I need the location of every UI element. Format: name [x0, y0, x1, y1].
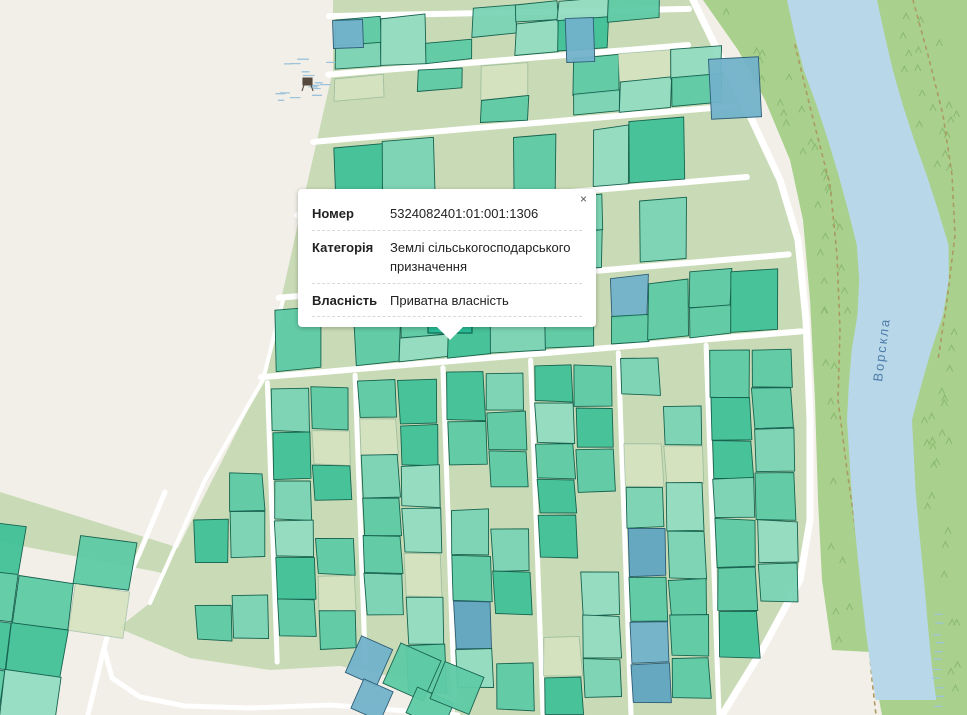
land-parcel[interactable]	[68, 584, 129, 639]
popup-field-label: Категорія	[312, 238, 390, 277]
popup-row-number: Номер 5324082401:01:001:1306	[312, 197, 582, 231]
popup-row-ownership: Власність Приватна власність	[312, 284, 582, 318]
land-parcel[interactable]	[630, 622, 669, 664]
land-parcel[interactable]	[487, 411, 527, 450]
land-parcel[interactable]	[454, 601, 492, 649]
land-parcel[interactable]	[629, 117, 685, 183]
land-parcel[interactable]	[493, 571, 533, 615]
land-parcel[interactable]	[668, 579, 706, 616]
land-parcel[interactable]	[610, 274, 648, 318]
land-parcel[interactable]	[363, 536, 403, 574]
land-parcel[interactable]	[713, 441, 754, 479]
land-parcel[interactable]	[334, 74, 384, 101]
map-generated-layers	[0, 0, 967, 715]
land-parcel[interactable]	[230, 511, 265, 557]
land-parcel[interactable]	[544, 636, 583, 676]
land-parcel[interactable]	[6, 623, 69, 678]
map-canvas[interactable]: Ворскла	[0, 0, 967, 715]
land-parcel[interactable]	[621, 358, 661, 396]
land-parcel[interactable]	[576, 449, 616, 493]
land-parcel[interactable]	[278, 599, 317, 637]
land-parcel[interactable]	[319, 611, 356, 650]
land-parcel[interactable]	[535, 365, 573, 402]
land-parcel[interactable]	[311, 387, 348, 430]
land-parcel[interactable]	[628, 528, 666, 576]
land-parcel[interactable]	[318, 575, 356, 611]
land-parcel[interactable]	[480, 95, 528, 122]
land-parcel[interactable]	[275, 481, 312, 521]
land-parcel[interactable]	[515, 20, 558, 56]
land-parcel[interactable]	[583, 615, 622, 658]
land-parcel[interactable]	[406, 597, 444, 644]
popup-field-value: Приватна власність	[390, 291, 582, 311]
land-parcel[interactable]	[73, 536, 137, 591]
land-parcel[interactable]	[758, 563, 798, 602]
land-parcel[interactable]	[664, 446, 704, 484]
land-parcel[interactable]	[0, 669, 61, 715]
land-parcel[interactable]	[515, 1, 558, 22]
land-parcel[interactable]	[447, 372, 486, 421]
land-parcel[interactable]	[497, 663, 535, 711]
land-parcel[interactable]	[731, 269, 778, 333]
land-parcel[interactable]	[574, 90, 620, 115]
land-parcel[interactable]	[402, 508, 442, 553]
land-parcel[interactable]	[486, 373, 523, 410]
land-parcel[interactable]	[708, 57, 761, 120]
land-parcel[interactable]	[689, 268, 732, 307]
land-parcel[interactable]	[230, 473, 265, 512]
land-parcel[interactable]	[333, 19, 364, 48]
land-parcel[interactable]	[312, 465, 352, 500]
land-parcel[interactable]	[452, 509, 489, 555]
land-parcel[interactable]	[581, 572, 620, 616]
land-parcel[interactable]	[276, 557, 316, 599]
land-parcel[interactable]	[666, 483, 704, 531]
land-parcel[interactable]	[626, 487, 664, 528]
land-parcel[interactable]	[316, 539, 356, 576]
popup-field-label: Номер	[312, 204, 390, 224]
land-parcel[interactable]	[489, 451, 528, 487]
land-parcel[interactable]	[593, 125, 628, 187]
land-parcel[interactable]	[274, 520, 313, 557]
land-parcel[interactable]	[514, 134, 556, 192]
land-parcel[interactable]	[363, 498, 402, 536]
land-parcel[interactable]	[481, 63, 528, 101]
land-parcel[interactable]	[472, 5, 517, 38]
land-parcel[interactable]	[576, 408, 613, 447]
land-parcel[interactable]	[452, 555, 492, 601]
land-parcel[interactable]	[360, 419, 399, 455]
land-parcel[interactable]	[583, 659, 622, 698]
land-parcel[interactable]	[448, 421, 488, 465]
land-parcel[interactable]	[648, 279, 689, 340]
land-parcel[interactable]	[713, 477, 755, 517]
land-parcel[interactable]	[619, 77, 671, 113]
land-parcel[interactable]	[624, 444, 664, 487]
land-parcel[interactable]	[545, 677, 584, 714]
popup-close-button[interactable]: ×	[580, 193, 587, 205]
land-parcel[interactable]	[690, 305, 732, 338]
land-parcel[interactable]	[668, 531, 707, 579]
land-parcel[interactable]	[537, 479, 577, 513]
parcel-info-popup: × Номер 5324082401:01:001:1306 Категорія…	[298, 189, 596, 327]
popup-callout-arrow	[436, 326, 464, 340]
land-parcel[interactable]	[381, 14, 427, 66]
land-parcel[interactable]	[670, 615, 709, 657]
land-parcel[interactable]	[751, 388, 793, 429]
land-parcel[interactable]	[364, 573, 404, 615]
land-parcel[interactable]	[232, 595, 269, 639]
land-parcel[interactable]	[574, 365, 612, 407]
map-stage: Ворскла × Номер 5324082401:01:001:1306 К…	[0, 0, 967, 715]
land-parcel[interactable]	[711, 397, 752, 440]
land-parcel[interactable]	[361, 455, 400, 499]
land-parcel[interactable]	[663, 406, 701, 445]
land-parcel[interactable]	[718, 567, 758, 611]
popup-field-value: 5324082401:01:001:1306	[390, 204, 582, 224]
popup-field-label: Власність	[312, 291, 390, 311]
popup-row-category: Категорія Землі сільськогосподарського п…	[312, 231, 582, 284]
land-parcel[interactable]	[398, 379, 437, 424]
land-parcel[interactable]	[755, 428, 795, 472]
land-parcel[interactable]	[536, 444, 576, 479]
land-parcel[interactable]	[758, 520, 799, 563]
land-parcel[interactable]	[535, 403, 575, 444]
land-parcel[interactable]	[629, 577, 668, 621]
land-parcel[interactable]	[672, 658, 711, 699]
land-parcel[interactable]	[565, 18, 595, 63]
land-parcel[interactable]	[357, 380, 396, 418]
land-parcel[interactable]	[312, 431, 351, 466]
land-parcel[interactable]	[640, 197, 687, 262]
land-parcel[interactable]	[631, 663, 671, 703]
land-parcel[interactable]	[612, 314, 649, 344]
land-parcel[interactable]	[755, 473, 796, 521]
land-parcel[interactable]	[194, 519, 229, 562]
land-parcel[interactable]	[710, 350, 750, 399]
land-parcel[interactable]	[401, 424, 438, 465]
popup-field-value: Землі сільськогосподарського призначення	[390, 238, 582, 277]
land-parcel[interactable]	[271, 388, 309, 432]
land-parcel[interactable]	[538, 515, 578, 558]
land-parcel[interactable]	[417, 68, 462, 92]
land-parcel[interactable]	[752, 349, 792, 387]
land-parcel[interactable]	[195, 605, 232, 641]
land-parcel[interactable]	[401, 465, 440, 508]
land-parcel[interactable]	[491, 529, 529, 572]
land-parcel[interactable]	[273, 432, 311, 480]
land-parcel[interactable]	[719, 611, 760, 658]
land-parcel[interactable]	[404, 553, 442, 597]
land-parcel[interactable]	[12, 576, 73, 631]
land-parcel[interactable]	[715, 518, 755, 567]
